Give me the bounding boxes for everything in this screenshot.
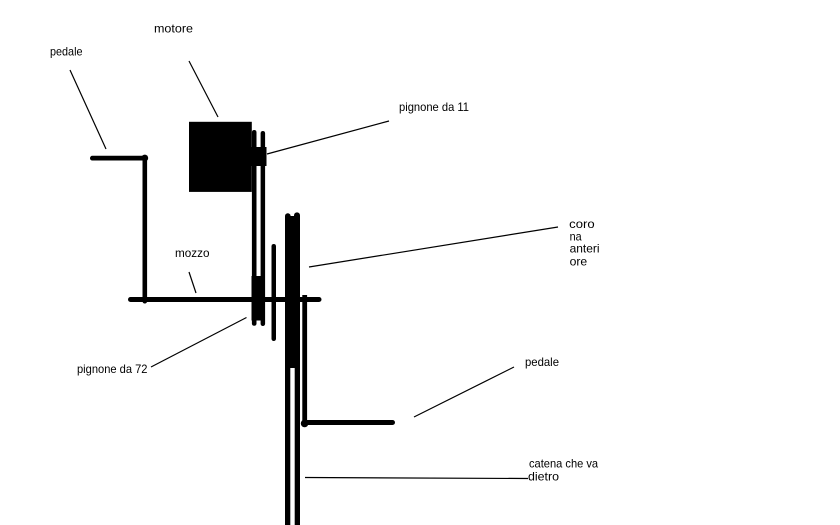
svg-text:pedale: pedale: [525, 355, 559, 369]
svg-text:anteri: anteri: [570, 242, 600, 256]
svg-text:catena che va: catena che va: [529, 456, 598, 470]
svg-text:pedale: pedale: [50, 45, 83, 59]
svg-text:ore: ore: [570, 255, 588, 269]
svg-text:pignone da 11: pignone da 11: [399, 100, 469, 114]
svg-text:dietro: dietro: [528, 469, 559, 483]
svg-text:pignone da 72: pignone da 72: [77, 362, 148, 376]
svg-text:motore: motore: [154, 22, 193, 36]
svg-text:mozzo: mozzo: [175, 246, 210, 260]
